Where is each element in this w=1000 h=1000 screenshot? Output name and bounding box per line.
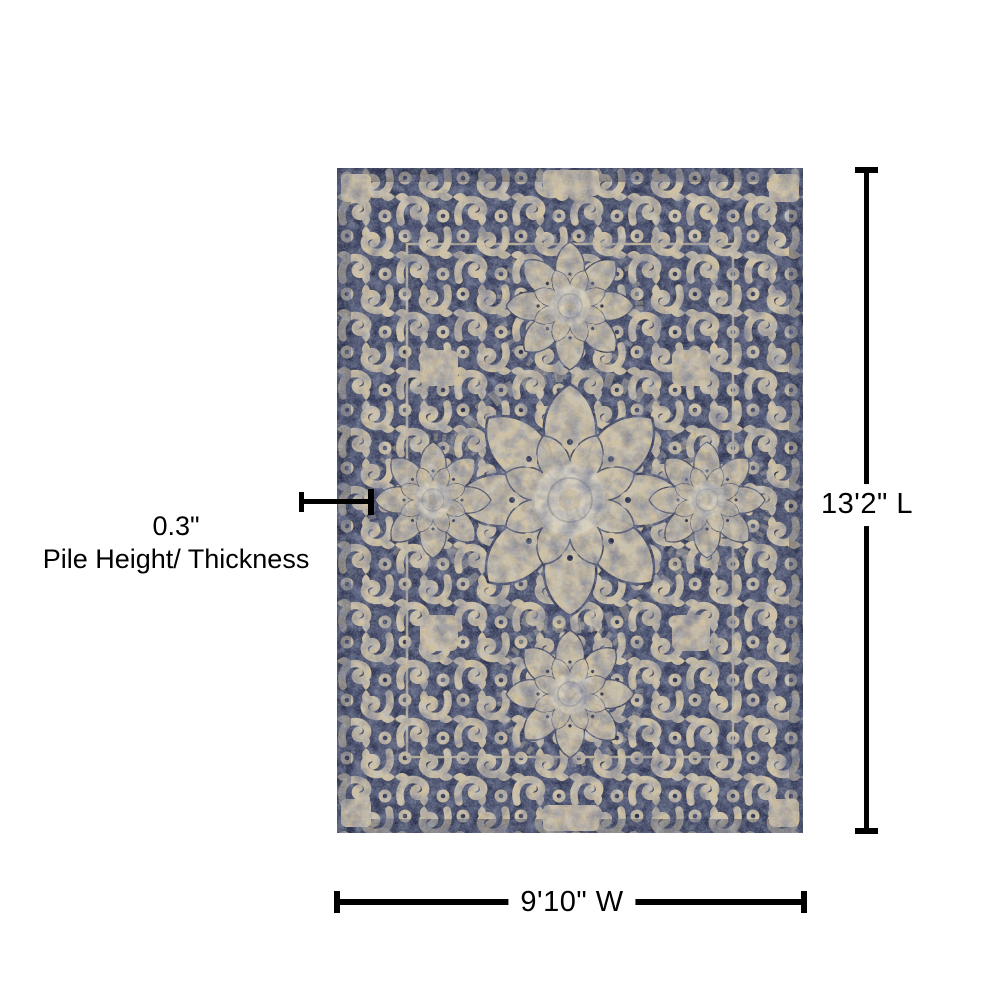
rug-dimension-diagram: 13'2" L 9'10" W 0.3" Pile Height/ Thickn… xyxy=(0,0,1000,1000)
rug-image xyxy=(337,168,803,833)
pile-height-name: Pile Height/ Thickness xyxy=(28,543,324,576)
pile-height-value: 0.3" xyxy=(28,510,324,543)
pile-height-pointer-line xyxy=(300,499,371,504)
pile-height-caption: 0.3" Pile Height/ Thickness xyxy=(28,510,324,576)
rug-pattern-graphic xyxy=(337,168,803,833)
width-dimension-cap-left xyxy=(334,891,340,913)
length-label: 13'2" L xyxy=(809,484,925,526)
width-label: 9'10" W xyxy=(508,882,635,924)
length-dimension-cap-top xyxy=(855,167,878,173)
pile-height-cap-left xyxy=(299,492,304,512)
rug-distress-texture xyxy=(337,168,803,833)
length-dimension-cap-bottom xyxy=(855,828,878,834)
width-dimension-cap-right xyxy=(801,891,807,913)
pile-height-cap-right xyxy=(368,489,374,515)
